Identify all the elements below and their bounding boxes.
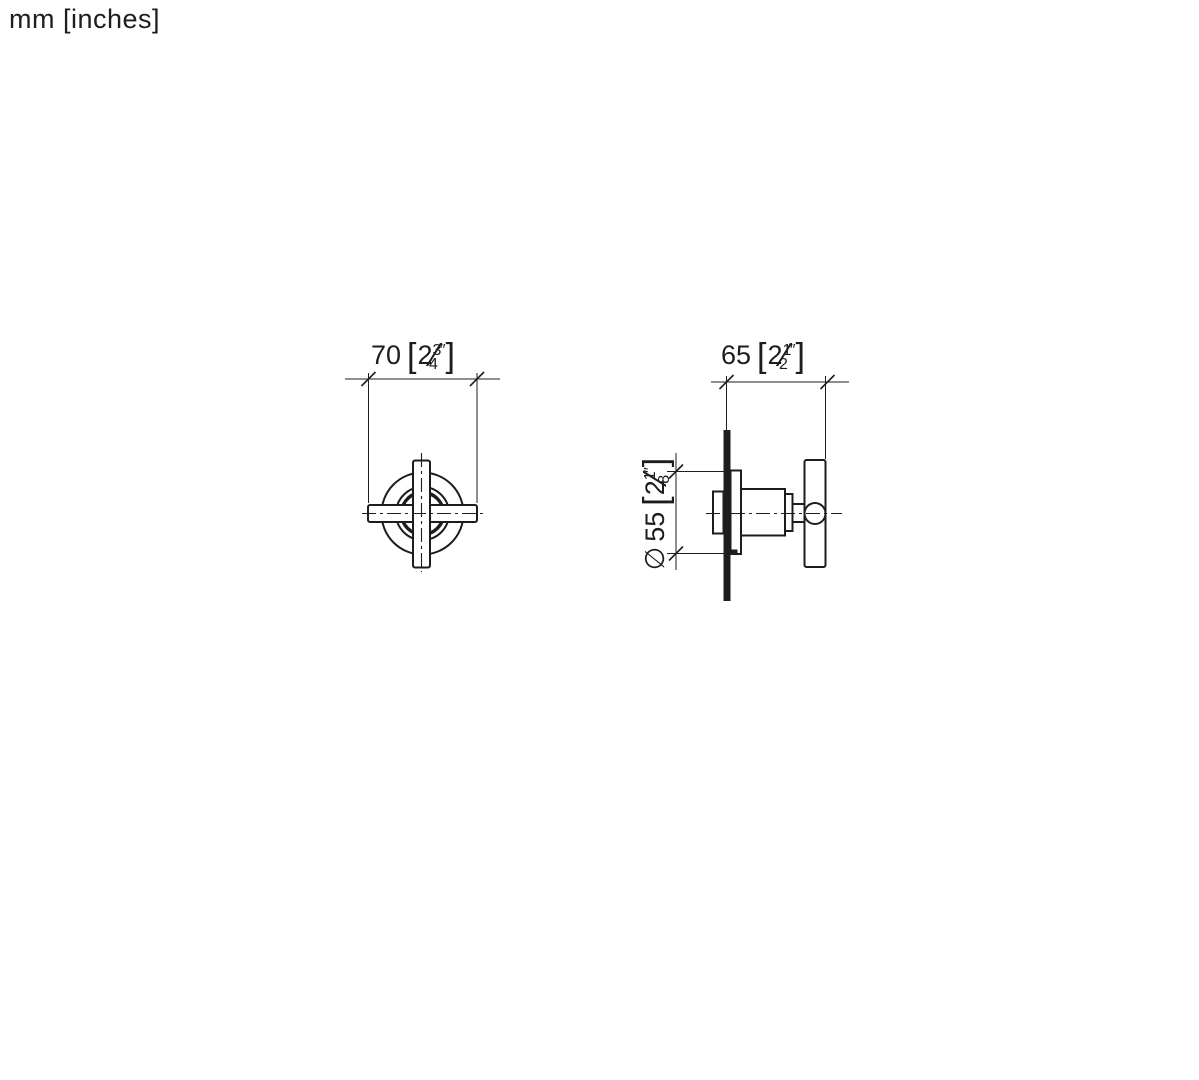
bracket-open: [	[407, 339, 416, 373]
drawing-linework	[0, 0, 1199, 1080]
inwall-valve-body	[713, 492, 724, 534]
valve-step-ring	[785, 494, 793, 531]
diameter-symbol: ∅	[642, 547, 669, 571]
bracket-open: [	[639, 496, 673, 505]
rosette-diameter-mm: 55	[642, 512, 669, 542]
bracket-close: ]	[639, 458, 673, 467]
dimension-label-rosette-diameter: ∅ 55 [ 2 1 ⁄ 8 ″ ]	[636, 424, 670, 604]
front-width-mm: 70	[371, 342, 401, 369]
front-view	[345, 372, 500, 572]
wall-line	[724, 430, 731, 601]
bracket-open: [	[757, 339, 766, 373]
bracket-close: ]	[796, 339, 805, 373]
rosette-base-notch	[729, 550, 738, 555]
valve-cylinder	[741, 489, 785, 536]
dimension-label-side-depth: 65 [ 2 1 ⁄ 2 ″ ]	[721, 336, 805, 370]
bracket-close: ]	[446, 339, 455, 373]
inch-mark: ″	[643, 467, 659, 473]
side-view	[667, 375, 849, 601]
side-depth-inch-den: 2	[779, 357, 788, 373]
dimension-label-front-width: 70 [ 2 3 ⁄ 4 ″ ]	[371, 336, 455, 370]
front-width-inch-den: 4	[429, 357, 438, 373]
side-depth-mm: 65	[721, 342, 751, 369]
rosette-diameter-inch-den: 8	[657, 475, 673, 484]
rosette-side	[731, 471, 742, 555]
unit-note: mm [inches]	[9, 4, 160, 35]
technical-drawing-page: mm [inches] 70 [ 2 3 ⁄ 4 ″ ] 65 [ 2 1 ⁄ …	[0, 0, 1199, 1080]
